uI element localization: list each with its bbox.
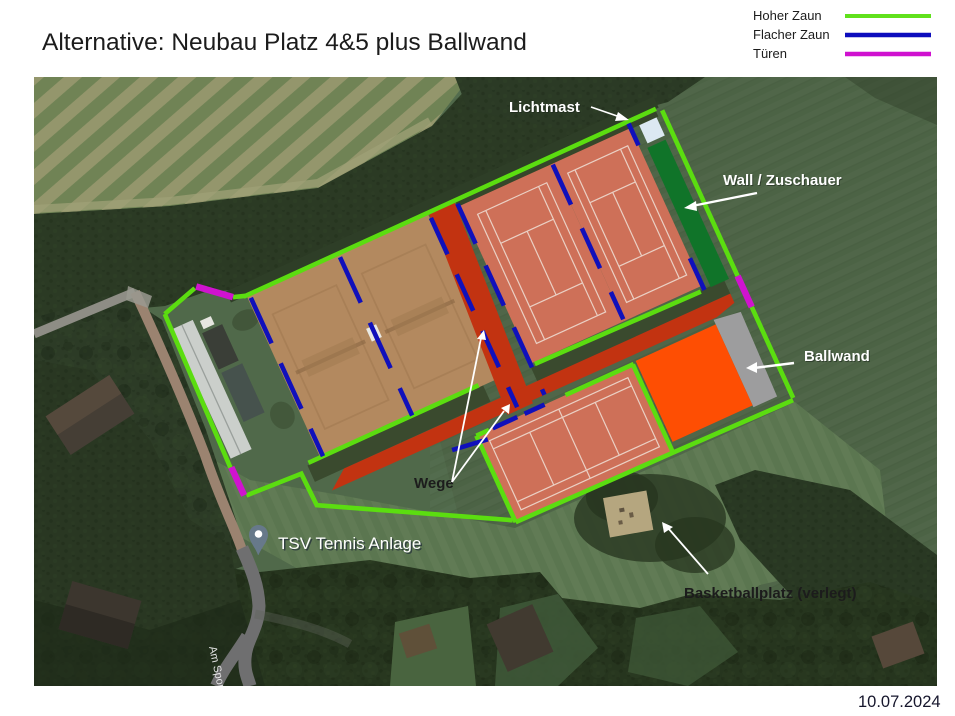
svg-text:Wall / Zuschauer: Wall / Zuschauer bbox=[723, 172, 842, 189]
svg-text:Flacher Zaun: Flacher Zaun bbox=[753, 27, 830, 42]
svg-text:TSV Tennis Anlage: TSV Tennis Anlage bbox=[278, 534, 421, 553]
svg-text:Basketballplatz (verlegt): Basketballplatz (verlegt) bbox=[684, 585, 857, 602]
svg-text:10.07.2024: 10.07.2024 bbox=[858, 693, 941, 711]
svg-text:Wege: Wege bbox=[414, 475, 454, 492]
svg-text:Alternative: Neubau Platz 4&5: Alternative: Neubau Platz 4&5 plus Ballw… bbox=[42, 29, 527, 56]
svg-text:Ballwand: Ballwand bbox=[804, 348, 870, 365]
svg-text:Türen: Türen bbox=[753, 46, 787, 61]
svg-text:Hoher Zaun: Hoher Zaun bbox=[753, 8, 822, 23]
svg-text:Lichtmast: Lichtmast bbox=[509, 99, 580, 116]
